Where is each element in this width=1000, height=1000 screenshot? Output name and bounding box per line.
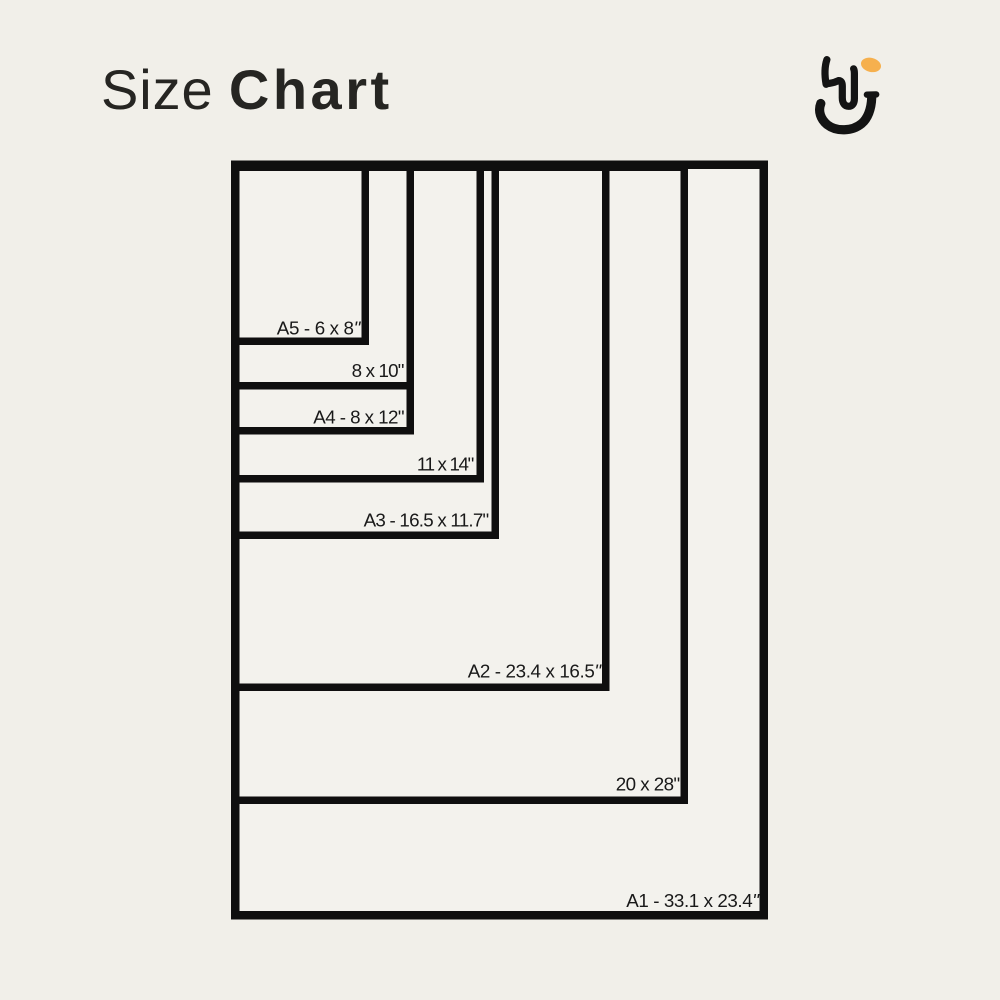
svg-text:A3 - 16.5 x 11.7": A3 - 16.5 x 11.7" — [364, 510, 490, 531]
svg-text:A2 - 23.4 x 16.5": A2 - 23.4 x 16.5" — [468, 661, 603, 682]
svg-text:11 x 14": 11 x 14" — [417, 453, 474, 474]
svg-text:8 x 10": 8 x 10" — [352, 360, 405, 381]
svg-text:A5 - 6 x 8": A5 - 6 x 8" — [277, 318, 362, 339]
svg-text:20 x 28": 20 x 28" — [616, 773, 681, 794]
svg-text:A4 - 8 x 12": A4 - 8 x 12" — [313, 407, 404, 428]
svg-text:A1 - 33.1 x 23.4": A1 - 33.1 x 23.4" — [626, 890, 760, 911]
